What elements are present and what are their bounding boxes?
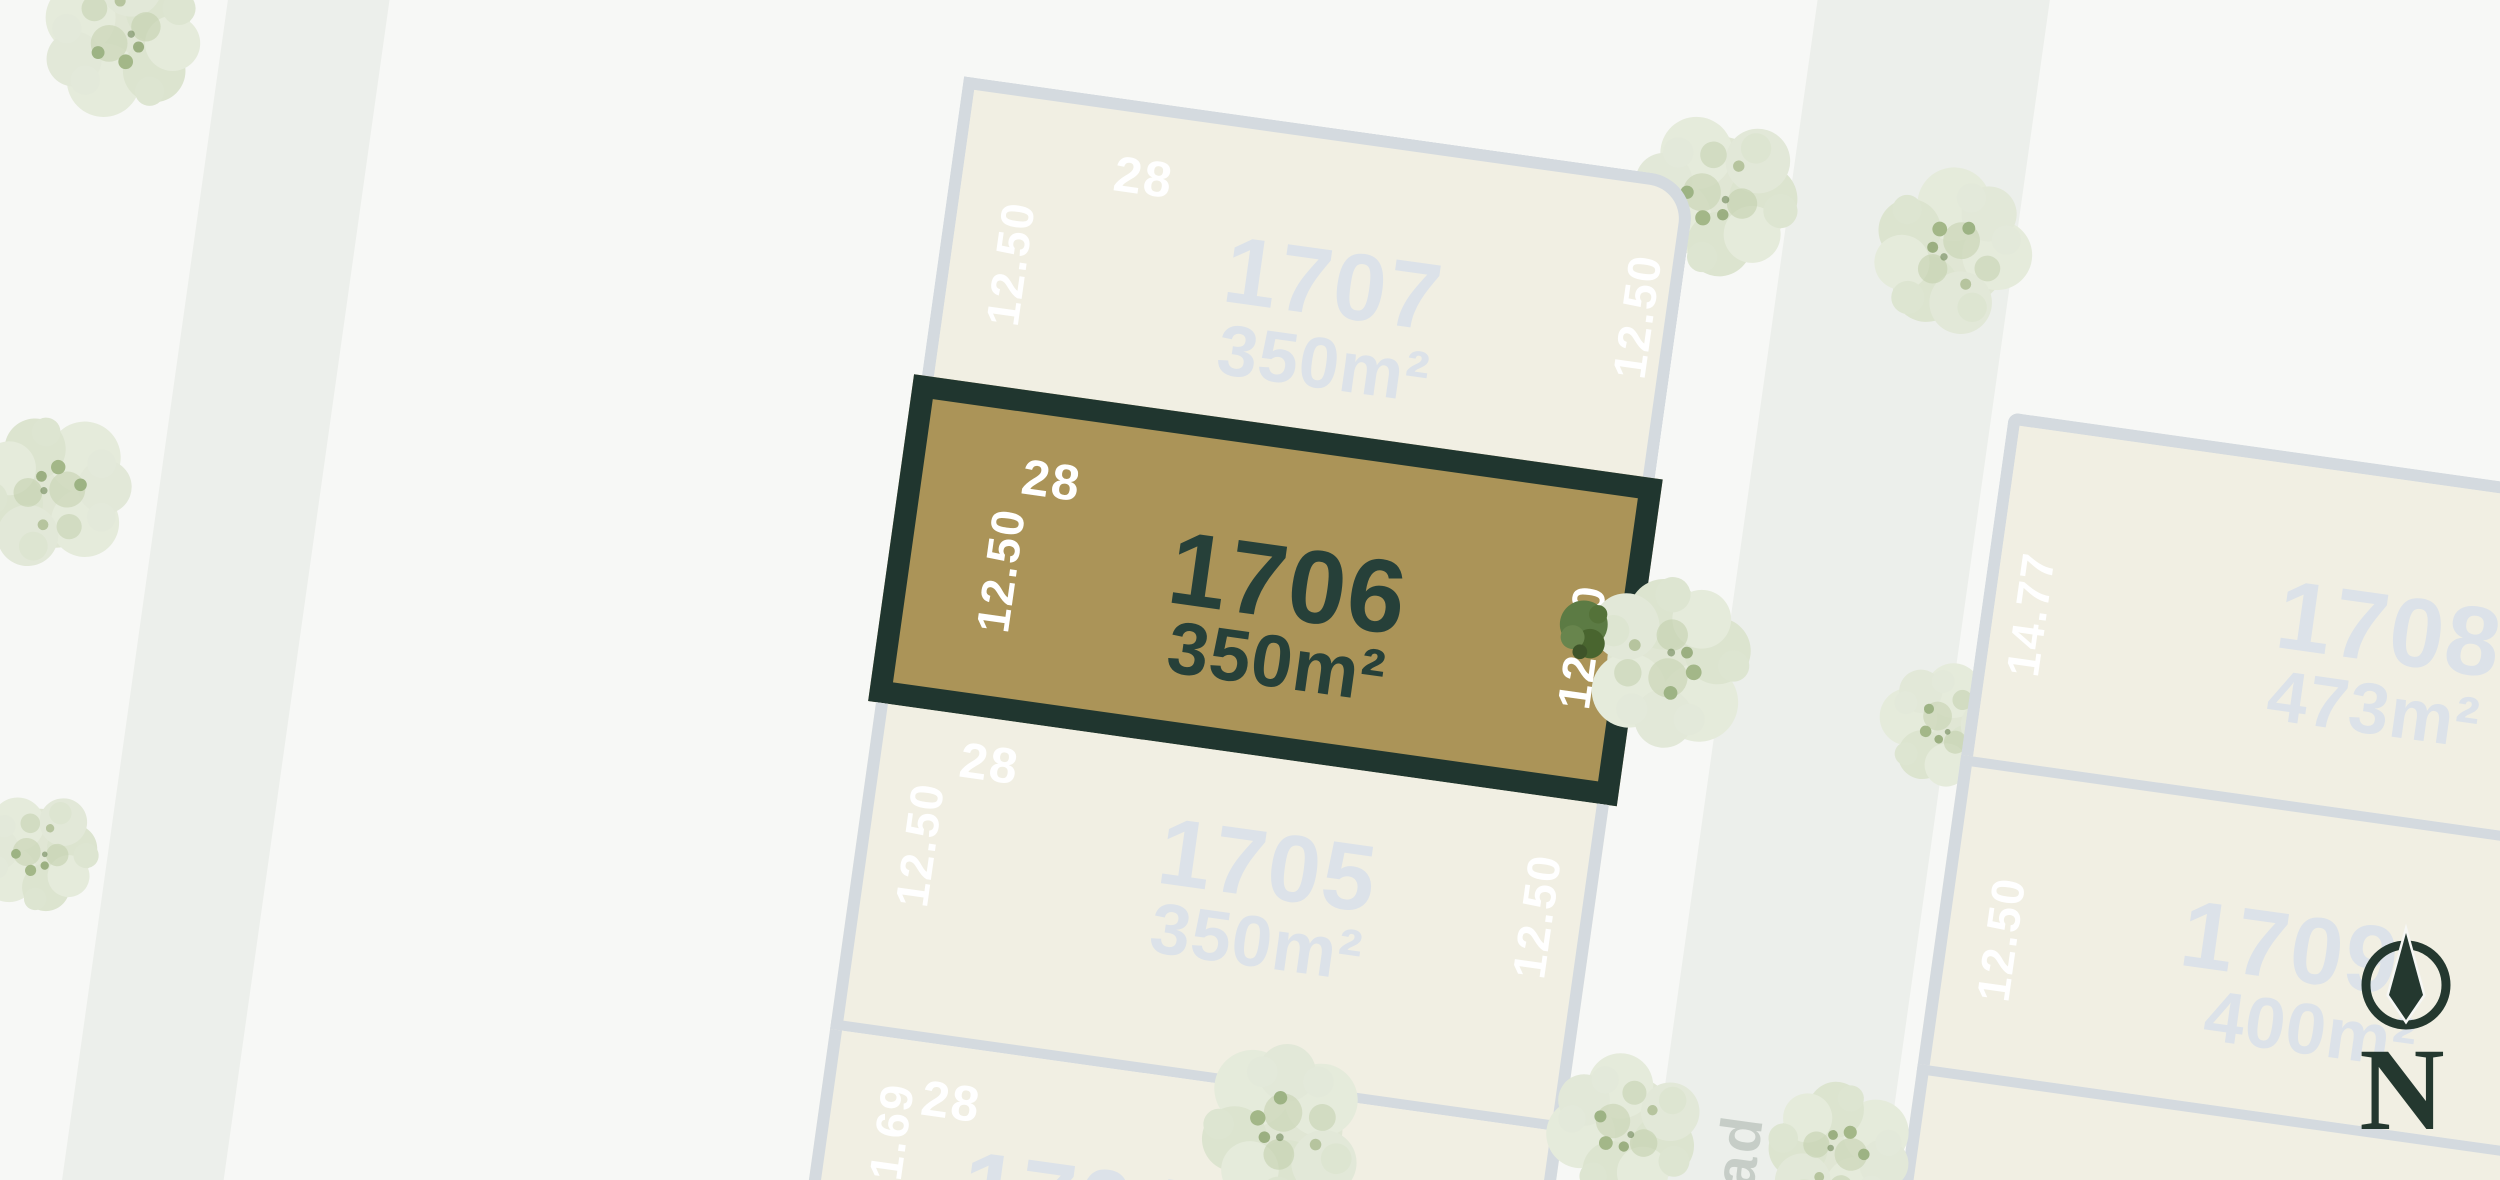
lot-1709-left-dim: 12.50 [1966,873,2037,1004]
lot-1706-frontage-dim: 28 [1018,448,1085,514]
site-plan-map: Road 1707350m²2812.5012.501706350m²2812.… [0,0,2500,1180]
road-band-left [46,0,413,1180]
lot-1708-left-dim: 14.77 [1995,548,2066,679]
tree-icon [30,0,214,128]
lot-column-left: 1707350m²2812.5012.501706350m²2812.5012.… [769,76,1697,1180]
lot-1707-frontage-dim: 28 [1110,144,1177,210]
lot-1707-right-dim: 12.50 [1602,251,1673,382]
lot-1706-right-dim: 12.50 [1546,581,1617,712]
lot-1707-left-dim: 12.50 [975,198,1046,329]
lot-1704-left-dim: 1.69 [858,1079,925,1180]
north-label: N [2359,1022,2444,1158]
lot-1704-number: 1704 [954,1129,1198,1180]
lot-1704-frontage-dim: 28 [918,1069,985,1135]
lot-1706-left-dim: 12.50 [965,505,1036,636]
lot-1705-frontage-dim: 28 [956,731,1023,797]
tree-icon [0,377,168,608]
lot-1705-left-dim: 12.50 [884,779,955,910]
lot-1705-right-dim: 12.50 [1501,850,1572,981]
